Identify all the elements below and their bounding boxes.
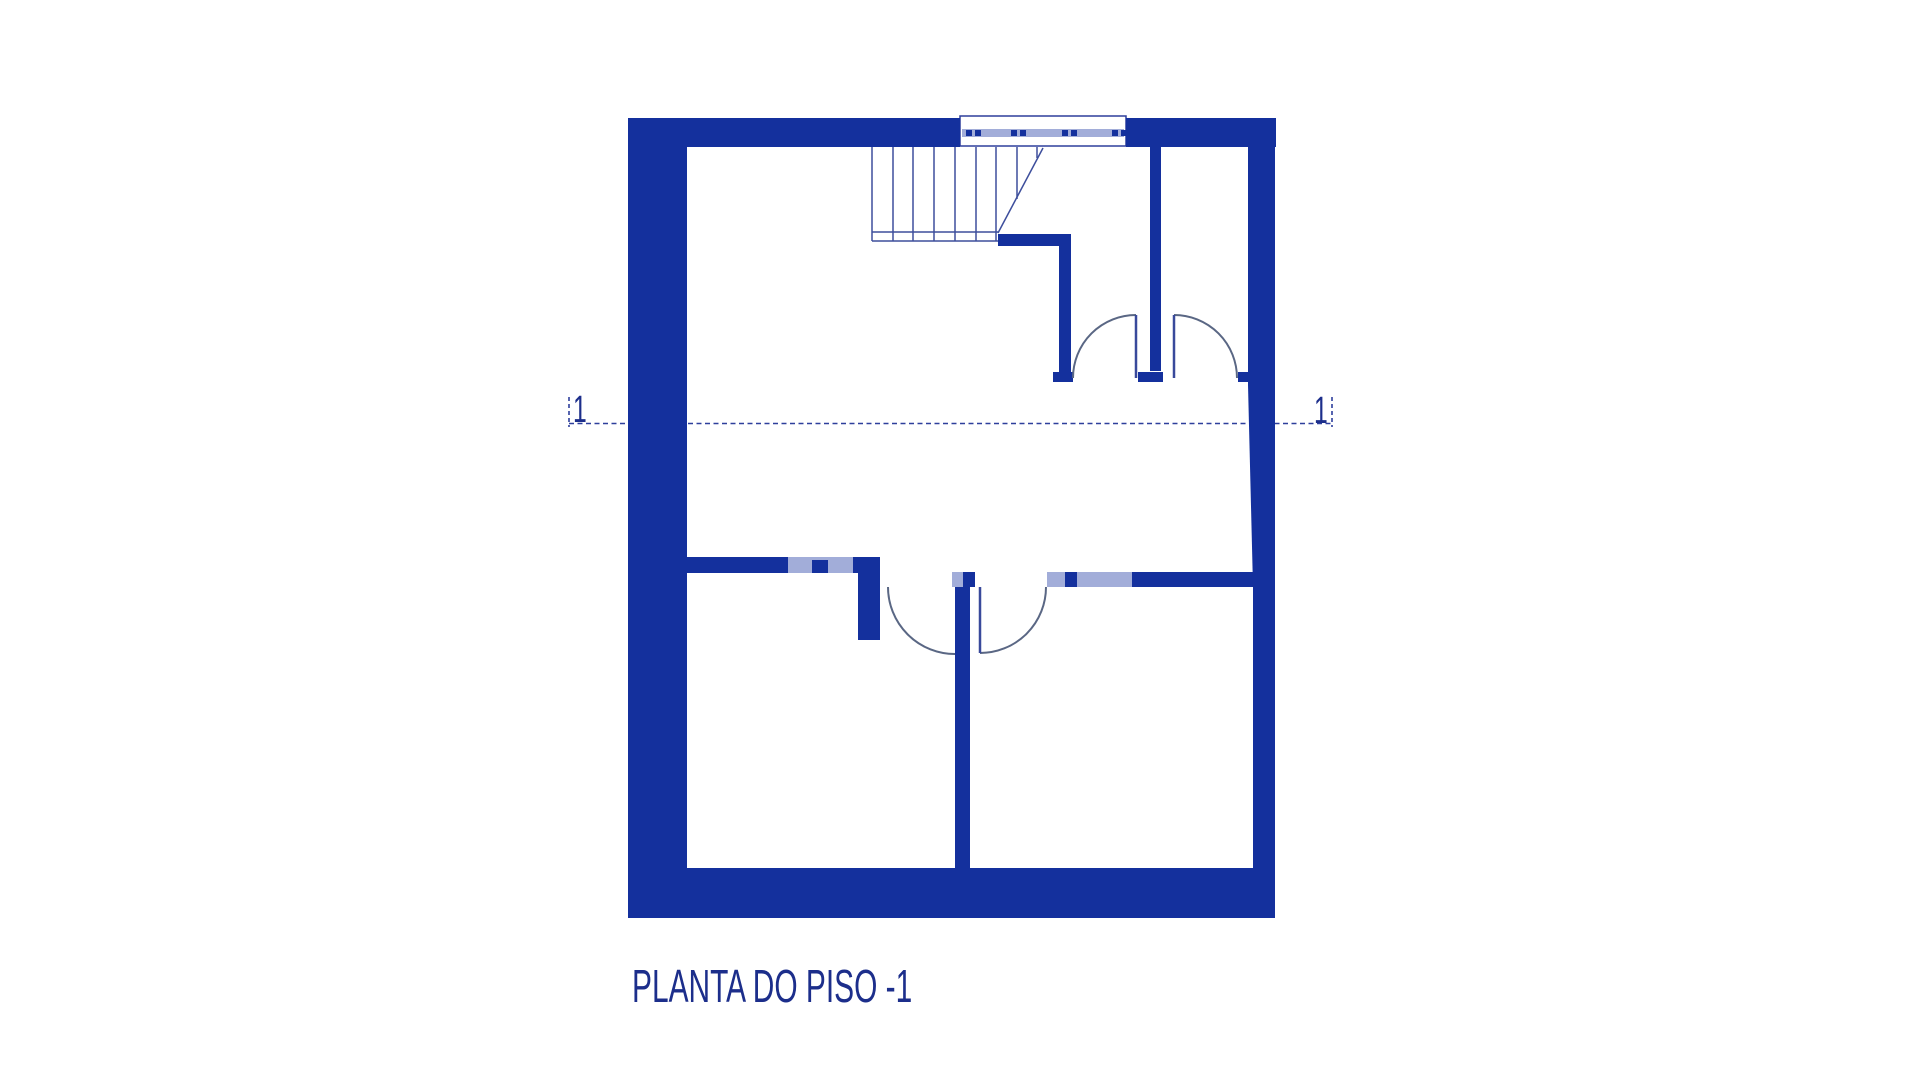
wall-segment (628, 868, 1275, 918)
wall-segment (812, 560, 828, 573)
wall-segment (1065, 572, 1077, 587)
wall-segment-slanted (1248, 385, 1275, 587)
door-swing-arc (980, 587, 1046, 653)
window-mullion-dash (1020, 130, 1026, 136)
door-swing-arc (888, 587, 955, 654)
floor-plan-drawing: 1 1 PLANTA DO PISO -1 (0, 0, 1920, 1080)
door-swing-arc (1174, 315, 1237, 378)
wall-segment (1248, 118, 1275, 385)
wall-segment (853, 557, 880, 573)
section-marker-right-label: 1 (1314, 392, 1328, 430)
window-mullion-dash (975, 130, 981, 136)
wall-segment (1053, 372, 1073, 382)
wall-segment (1253, 587, 1275, 868)
wall-segment (1150, 147, 1161, 371)
door-swing-arc (1073, 315, 1136, 378)
wall-segment (1138, 372, 1163, 382)
wall-segment (955, 587, 970, 868)
wall-segment (628, 118, 687, 918)
wall-segment (1132, 572, 1254, 587)
wall-segment (998, 234, 1071, 246)
window-mullion-dash (1112, 130, 1118, 136)
stair-break-diagonal (998, 148, 1043, 233)
wall-segment (682, 557, 788, 573)
wall-segment (1238, 372, 1250, 382)
section-marker-left-label: 1 (573, 391, 587, 429)
wall-segment (1059, 246, 1071, 372)
window-mullion-dash (1071, 130, 1077, 136)
window-light-segment (952, 572, 963, 587)
plan-title: PLANTA DO PISO -1 (632, 963, 912, 1009)
window-mullion-dash (1011, 130, 1017, 136)
wall-segment (628, 118, 960, 147)
window-glazing-band (962, 129, 1124, 137)
window-mullion-dash (966, 130, 972, 136)
window-light-segment (1047, 572, 1132, 587)
wall-segment (858, 573, 880, 640)
wall-segment (963, 572, 975, 587)
window-mullion-dash (1062, 130, 1068, 136)
floor-plan-svg (0, 0, 1920, 1080)
